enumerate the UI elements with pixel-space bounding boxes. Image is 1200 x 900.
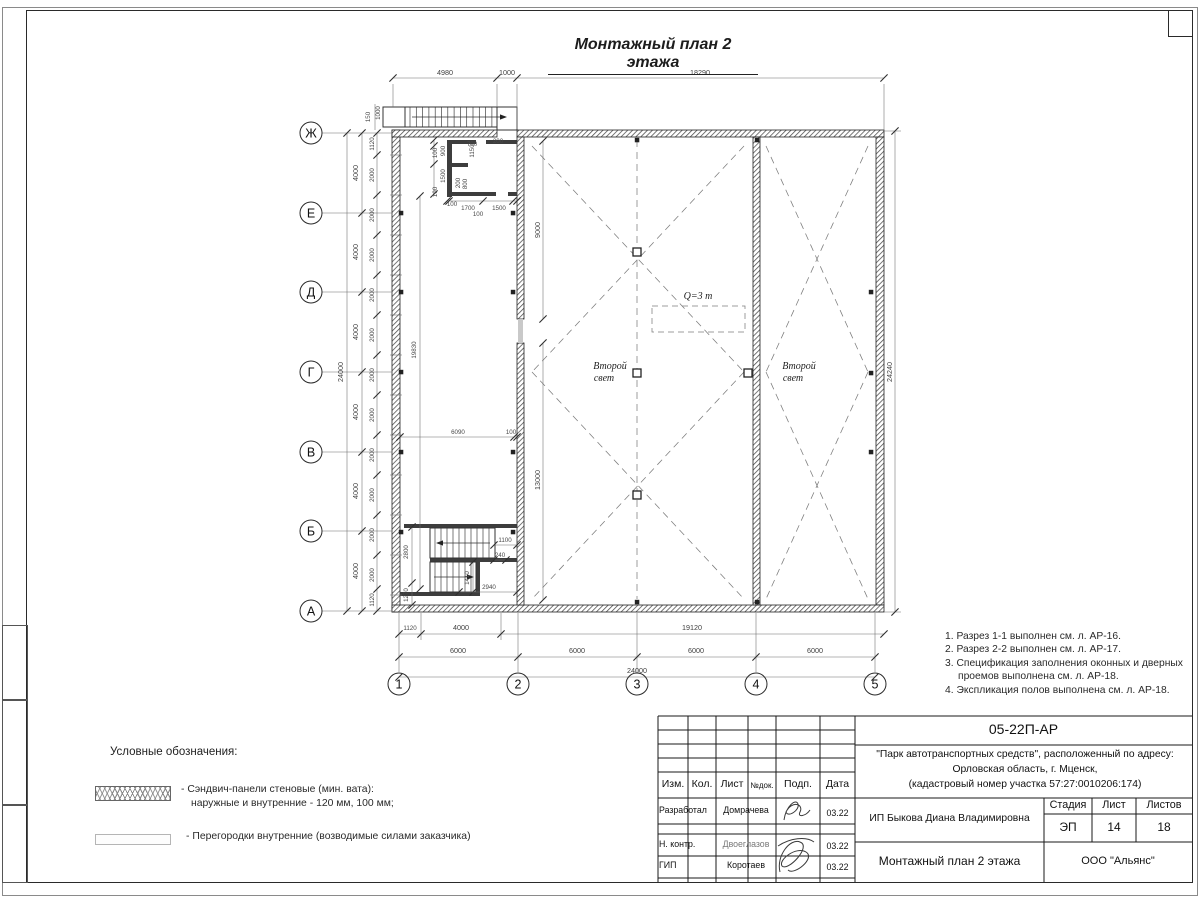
dimension-text: 1500 <box>492 205 506 212</box>
dimension-text: 4000 <box>351 563 360 579</box>
titleblock-sheet-title: Монтажный план 2 этажа <box>855 854 1044 868</box>
drawing-sheet: { "sheet": { "title": "Монтажный план 2 … <box>0 0 1200 900</box>
dimension-text: 4000 <box>453 623 469 632</box>
dimension-text: 2000 <box>369 288 376 302</box>
company-name: ООО "Альянс" <box>1044 855 1192 867</box>
legend-item-partitions: - Перегородки внутренние (возводимые сил… <box>186 831 586 842</box>
signature <box>784 802 810 820</box>
axis-label: Е <box>307 207 315 221</box>
date-razrabotal: 03.22 <box>820 808 855 818</box>
wall-segment <box>517 137 524 319</box>
column-marker <box>755 138 760 143</box>
sheet-number: 14 <box>1092 820 1136 834</box>
dimension-text: 2000 <box>369 408 376 422</box>
axis-label: Г <box>308 366 315 380</box>
column-marker <box>511 530 516 535</box>
column-header-kol: Кол. <box>688 778 716 790</box>
column-marker <box>869 371 874 376</box>
dimension-text: 6000 <box>688 646 704 655</box>
dimension-text: 2000 <box>369 448 376 462</box>
dimension-text: 100 <box>506 429 517 436</box>
column-header-list: Лист <box>716 778 748 790</box>
dimension-text: 19830 <box>411 341 418 359</box>
dimension-text: 4000 <box>351 324 360 340</box>
dimension-text: 2800 <box>403 545 410 559</box>
partition-wall <box>508 192 517 196</box>
stage-value: ЭП <box>1044 820 1092 834</box>
axis-label: 5 <box>872 678 879 692</box>
column-marker <box>511 211 516 216</box>
name-razrabotal: Домрачева <box>716 805 776 815</box>
dimension-text: 1410 <box>464 571 471 585</box>
project-name-line: "Парк автотранспортных средств", располо… <box>858 749 1192 760</box>
wall-segment <box>392 130 497 137</box>
column <box>633 248 641 256</box>
name-gip: Коротаев <box>716 860 776 870</box>
dimension-text: 9000 <box>533 222 542 238</box>
note-item: 2. Разрез 2-2 выполнен см. л. АР-17. <box>945 643 1200 656</box>
dimension-text: 1270 <box>403 588 410 602</box>
dimension-text: 4000 <box>351 165 360 181</box>
signature <box>779 841 808 872</box>
axis-label: А <box>307 605 316 619</box>
dimension-text: 4000 <box>351 483 360 499</box>
dimension-text: 1120 <box>369 137 376 151</box>
legend-item-text: - Сэндвич-панели стеновые (мин. вата): <box>181 783 511 797</box>
dimension-text: 6000 <box>569 646 585 655</box>
dimension-text: 100 <box>432 186 439 197</box>
dimension-text: Второй <box>593 361 626 372</box>
partition-wall <box>452 192 496 196</box>
column-header-data: Дата <box>820 778 855 790</box>
legend-swatch-partition <box>95 834 171 845</box>
dimension-text: 24000 <box>627 666 647 675</box>
column-marker <box>755 600 760 605</box>
axis-label: Ж <box>305 127 317 141</box>
dimension-text: 150 <box>365 111 372 122</box>
dimension-text: 2000 <box>369 528 376 542</box>
dimension-text: свет <box>783 373 803 384</box>
axis-label: 4 <box>753 678 760 692</box>
dimension-text: Q=3 т <box>684 291 713 302</box>
dimension-text: 13000 <box>533 470 542 490</box>
dimension-text: 1120 <box>403 625 417 632</box>
dimension-text: 200 <box>493 138 504 145</box>
partition-wall <box>476 562 480 596</box>
wall-segment <box>392 605 884 612</box>
column <box>633 491 641 499</box>
dimension-text: 200 <box>455 177 462 188</box>
bracing-dashed-line <box>532 146 744 372</box>
role-nkontr: Н. контр. <box>659 839 716 849</box>
dimension-text: 1120 <box>369 593 376 607</box>
dimension-text: 4980 <box>437 68 453 77</box>
column-marker <box>399 290 404 295</box>
dimension-text: 1000 <box>375 106 382 120</box>
dimension-text: свет <box>594 373 614 384</box>
date-nkontr: 03.22 <box>820 841 855 851</box>
notes-block: 1. Разрез 1-1 выполнен см. л. АР-16. 2. … <box>945 630 1200 697</box>
dimension-text: 100 <box>473 211 484 218</box>
dimension-text: 1000 <box>499 68 515 77</box>
axis-label: Б <box>307 525 315 539</box>
column-marker <box>869 290 874 295</box>
role-razrabotal: Разработал <box>659 805 716 815</box>
bracing-dashed-line <box>532 146 744 372</box>
dimension-text: 4000 <box>351 404 360 420</box>
axis-label: В <box>307 446 315 460</box>
dimension-text: 2000 <box>369 168 376 182</box>
dimension-text: 2000 <box>369 248 376 262</box>
partition-wall <box>447 140 452 197</box>
column-marker <box>869 450 874 455</box>
legend-swatch-sandwich-panel <box>95 786 171 801</box>
column <box>744 369 752 377</box>
column-marker <box>511 450 516 455</box>
dimension-text: 240 <box>495 552 506 559</box>
dimension-text: 800 <box>462 178 469 189</box>
column-marker <box>635 138 640 143</box>
date-gip: 03.22 <box>820 862 855 872</box>
dimension-text: 6090 <box>451 429 465 436</box>
dimension-text: 100 <box>447 201 458 208</box>
wall-segment <box>876 137 884 605</box>
wall-segment <box>517 343 524 605</box>
column <box>633 369 641 377</box>
note-item: 1. Разрез 1-1 выполнен см. л. АР-16. <box>945 630 1200 643</box>
dimension-text: 6000 <box>450 646 466 655</box>
stair-direction-arrow <box>436 540 443 545</box>
signature <box>778 839 814 846</box>
dimension-text: 900 <box>440 145 447 156</box>
dimension-text: 6000 <box>807 646 823 655</box>
dimension-text: 2000 <box>369 568 376 582</box>
dimension-text: 24240 <box>885 362 894 382</box>
dimension-text: 2000 <box>369 488 376 502</box>
stair-outline <box>383 107 405 127</box>
axis-label: Д <box>307 286 316 300</box>
column-header-ndok: №док. <box>748 781 776 790</box>
column-marker <box>399 370 404 375</box>
axis-label: 2 <box>515 678 522 692</box>
dimension-text: 24000 <box>336 362 345 382</box>
legend-title: Условные обозначения: <box>110 746 237 758</box>
sheet-label: Лист <box>1092 799 1136 811</box>
wall-segment <box>517 130 884 137</box>
client-name: ИП Быкова Диана Владимировна <box>855 813 1044 824</box>
dimension-text: 2000 <box>369 328 376 342</box>
axis-label: 3 <box>634 678 641 692</box>
column-marker <box>635 600 640 605</box>
dimension-text: 4000 <box>351 244 360 260</box>
column-header-podp: Подп. <box>776 778 820 790</box>
project-name-line: Орловская область, г. Мценск, <box>858 764 1192 775</box>
partition-wall <box>452 163 468 167</box>
dimension-text: 1100 <box>498 537 512 544</box>
column-header-izm: Изм. <box>658 778 688 790</box>
wall-segment <box>753 137 760 605</box>
dimension-text: 1500 <box>440 169 447 183</box>
column-marker <box>399 450 404 455</box>
dimension-text: 2940 <box>482 584 496 591</box>
dimension-text: 19120 <box>682 623 702 632</box>
sheets-label: Листов <box>1136 799 1192 811</box>
stair-direction-arrow <box>500 114 507 119</box>
name-nkontr: Двоеглазов <box>716 839 776 849</box>
column-marker <box>511 290 516 295</box>
axis-label: 1 <box>396 678 403 692</box>
note-item: 3. Спецификация заполнения оконных и две… <box>945 657 1200 684</box>
dimension-text: 100 <box>432 147 439 158</box>
dimension-text: 2000 <box>369 208 376 222</box>
project-name-line: (кадастровый номер участка 57:27:0010206… <box>858 779 1192 790</box>
legend-item-text: наружные и внутренние - 120 мм, 100 мм; <box>191 797 511 811</box>
dimension-text: 700 <box>467 141 478 148</box>
document-number: 05-22П-АР <box>855 721 1192 737</box>
drawing-title: Монтажный план 2 этажа <box>548 36 758 75</box>
role-gip: ГИП <box>659 860 716 870</box>
dimension-text: 2000 <box>369 368 376 382</box>
wall-opening <box>518 319 523 343</box>
crane-zone <box>652 306 745 332</box>
note-item: 4. Экспликация полов выполнена см. л. АР… <box>945 684 1200 697</box>
dimension-text: Второй <box>782 361 815 372</box>
sheets-total: 18 <box>1136 820 1192 834</box>
column-marker <box>399 530 404 535</box>
legend-item-sandwich-panels: - Сэндвич-панели стеновые (мин. вата): н… <box>181 783 511 811</box>
stage-label: Стадия <box>1044 799 1092 811</box>
partition-wall <box>404 524 517 528</box>
column-marker <box>399 211 404 216</box>
